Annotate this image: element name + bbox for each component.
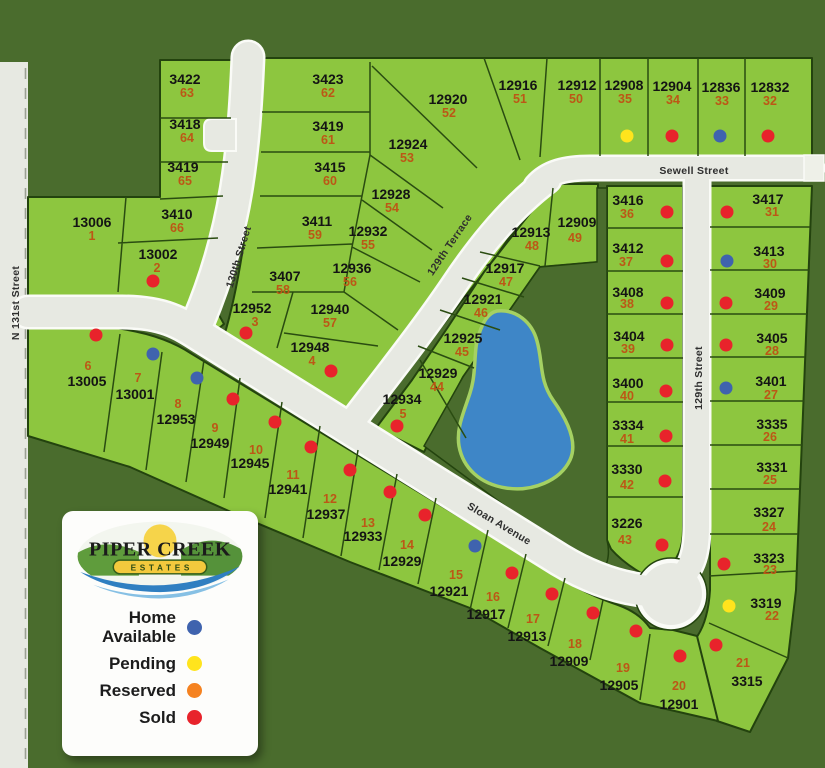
lot-address: 12929: [383, 553, 422, 569]
lot-number: 34: [666, 93, 680, 107]
lot-address: 12921: [464, 291, 503, 307]
status-dot-sold: [240, 327, 253, 340]
lot-number: 33: [715, 94, 729, 108]
status-dot-sold: [90, 329, 103, 342]
status-dot-sold: [656, 539, 669, 552]
status-dot-sold: [720, 339, 733, 352]
lot-address: 12934: [383, 391, 422, 407]
lot-address: 12909: [550, 653, 589, 669]
lot-number: 20: [672, 679, 686, 693]
status-dot-sold: [661, 297, 674, 310]
status-dot-sold: [661, 339, 674, 352]
lot-address: 12908: [605, 77, 644, 93]
lot-address: 12925: [444, 330, 483, 346]
status-dot-sold: [718, 558, 731, 571]
lot-number: 31: [765, 205, 779, 219]
lot-number: 62: [321, 86, 335, 100]
lot-address: 12901: [660, 696, 699, 712]
status-dot-sold: [630, 625, 643, 638]
lot-number: 22: [765, 609, 779, 623]
lot-address: 3419: [167, 159, 198, 175]
lot-number: 35: [618, 92, 632, 106]
lot-address: 12920: [429, 91, 468, 107]
lot-address: 12952: [233, 300, 272, 316]
lot-address: 13005: [68, 373, 107, 389]
lot-number: 9: [212, 421, 219, 435]
lot-address: 12916: [499, 77, 538, 93]
lot-number: 66: [170, 221, 184, 235]
reserved-dot-icon: [187, 683, 202, 698]
lot-number: 16: [486, 590, 500, 604]
lot-address: 12949: [191, 435, 230, 451]
lot-number: 52: [442, 106, 456, 120]
lot-number: 32: [763, 94, 777, 108]
status-dot-sold: [587, 607, 600, 620]
lot-address: 12937: [307, 506, 346, 522]
lot-number: 60: [323, 174, 337, 188]
lot-address: 12933: [344, 528, 383, 544]
lot-number: 27: [764, 388, 778, 402]
lot-number: 7: [135, 371, 142, 385]
lot-number: 1: [89, 229, 96, 243]
status-dot-home-available: [721, 255, 734, 268]
lot-address: 12928: [372, 186, 411, 202]
lot-number: 21: [736, 656, 750, 670]
lot-number: 56: [343, 275, 357, 289]
lot-address: 12836: [702, 79, 741, 95]
lot-number: 63: [180, 86, 194, 100]
lot-address: 3419: [312, 118, 343, 134]
lot-number: 10: [249, 443, 263, 457]
home-available-dot-icon: [187, 620, 202, 635]
legend-items: Home Available Pending Reserved Sold: [72, 608, 248, 727]
status-dot-pending: [621, 130, 634, 143]
lot-address: 12912: [558, 77, 597, 93]
lot-number: 6: [85, 359, 92, 373]
status-dot-sold: [384, 486, 397, 499]
lot-number: 19: [616, 661, 630, 675]
brand-banner-text: ESTATES: [131, 564, 193, 573]
lot-address: 12905: [600, 677, 639, 693]
lot-number: 3: [252, 315, 259, 329]
lot-number: 51: [513, 92, 527, 106]
lot-number: 42: [620, 478, 634, 492]
lot-address: 12924: [389, 136, 428, 152]
lot-address: 12940: [311, 301, 350, 317]
street-label-n-131st-street: N 131st Street: [10, 266, 22, 340]
lot-number: 58: [276, 283, 290, 297]
lot-number: 65: [178, 174, 192, 188]
status-dot-home-available: [191, 372, 204, 385]
status-dot-home-available: [714, 130, 727, 143]
lot-number: 29: [764, 299, 778, 313]
lot-number: 4: [309, 354, 316, 368]
legend-item-home-available: Home Available: [72, 608, 248, 646]
lot-number: 13: [361, 516, 375, 530]
status-dot-sold: [762, 130, 775, 143]
lot-address: 3423: [312, 71, 343, 87]
lot-number: 49: [568, 231, 582, 245]
lot-address: 12909: [558, 214, 597, 230]
lot-address: 12917: [486, 260, 525, 276]
lot-address: 13006: [73, 214, 112, 230]
status-dot-sold: [660, 430, 673, 443]
lot-number: 36: [620, 207, 634, 221]
status-dot-sold: [659, 475, 672, 488]
status-dot-home-available: [469, 540, 482, 553]
lot-number: 55: [361, 238, 375, 252]
lot-address: 3226: [611, 515, 642, 531]
status-dot-home-available: [720, 382, 733, 395]
lot-address: 12917: [467, 606, 506, 622]
lot-number: 53: [400, 151, 414, 165]
road-stub-130th: [204, 119, 236, 151]
lot-address: 3418: [169, 116, 200, 132]
lot-number: 43: [618, 533, 632, 547]
legend-card: PIPER CREEK ESTATES Home Available Pendi…: [62, 511, 258, 756]
lot-number: 38: [620, 297, 634, 311]
lot-number: 24: [762, 520, 776, 534]
lot-address: 3330: [611, 461, 642, 477]
legend-label: Sold: [139, 708, 176, 727]
legend-item-reserved: Reserved: [72, 681, 248, 700]
lot-address: 3416: [612, 192, 643, 208]
lot-address: 13002: [139, 246, 178, 262]
status-dot-sold: [305, 441, 318, 454]
status-dot-sold: [147, 275, 160, 288]
status-dot-sold: [227, 393, 240, 406]
lot-address: 3415: [314, 159, 345, 175]
lot-number: 18: [568, 637, 582, 651]
lot-number: 23: [763, 563, 777, 577]
sold-dot-icon: [187, 710, 202, 725]
legend-label: Home Available: [76, 608, 176, 646]
lot-number: 30: [763, 257, 777, 271]
status-dot-sold: [661, 206, 674, 219]
lot-address: 3407: [269, 268, 300, 284]
lot-address: 3412: [612, 240, 643, 256]
lot-number: 15: [449, 568, 463, 582]
status-dot-sold: [269, 416, 282, 429]
lot-address: 3334: [612, 417, 643, 433]
status-dot-sold: [506, 567, 519, 580]
legend-item-sold: Sold: [72, 708, 248, 727]
status-dot-sold: [721, 206, 734, 219]
road-n-131st-street: [0, 62, 28, 768]
lot-number: 41: [620, 432, 634, 446]
status-dot-sold: [391, 420, 404, 433]
street-label-129th-street: 129th Street: [693, 346, 705, 410]
cul-de-sac: [640, 563, 702, 625]
lot-number: 5: [400, 407, 407, 421]
legend-item-pending: Pending: [72, 654, 248, 673]
lot-address: 12913: [512, 224, 551, 240]
lot-address: 12921: [430, 583, 469, 599]
legend-label: Reserved: [99, 681, 176, 700]
lot-address: 12948: [291, 339, 330, 355]
status-dot-sold: [325, 365, 338, 378]
street-label-sewell-street: Sewell Street: [659, 165, 728, 177]
lot-number: 14: [400, 538, 414, 552]
status-dot-sold: [674, 650, 687, 663]
lot-number: 28: [765, 344, 779, 358]
pending-dot-icon: [187, 656, 202, 671]
status-dot-pending: [723, 600, 736, 613]
lot-address: 3422: [169, 71, 200, 87]
lot-number: 11: [286, 468, 299, 482]
road-stub-sewell: [804, 155, 824, 181]
lot-address: 3327: [753, 504, 784, 520]
status-dot-sold: [546, 588, 559, 601]
lot-number: 39: [621, 342, 635, 356]
lot-address: 12913: [508, 628, 547, 644]
lot-number: 8: [175, 397, 182, 411]
legend-label: Pending: [109, 654, 176, 673]
lot-address: 12945: [231, 455, 270, 471]
status-dot-sold: [720, 297, 733, 310]
status-dot-sold: [419, 509, 432, 522]
status-dot-sold: [660, 385, 673, 398]
lot-address: 12904: [653, 78, 692, 94]
lot-address: 3411: [302, 213, 333, 229]
lot-number: 25: [763, 473, 777, 487]
lot-number: 46: [474, 306, 488, 320]
lot-number: 61: [321, 133, 335, 147]
lot-number: 40: [620, 389, 634, 403]
lot-number: 12: [323, 492, 337, 506]
lot-address: 3410: [161, 206, 192, 222]
lot-address: 3401: [755, 373, 786, 389]
piper-creek-logo: PIPER CREEK ESTATES: [73, 517, 247, 605]
status-dot-sold: [661, 255, 674, 268]
lot-number: 64: [180, 131, 194, 145]
lot-number: 54: [385, 201, 399, 215]
status-dot-sold: [344, 464, 357, 477]
lot-number: 50: [569, 92, 583, 106]
lot-address: 12941: [269, 481, 308, 497]
lot-number: 59: [308, 228, 322, 242]
lot-address: 12929: [419, 365, 458, 381]
lot-number: 26: [763, 430, 777, 444]
lot-number: 37: [619, 255, 633, 269]
lot-address: 12832: [751, 79, 790, 95]
lot-address: 12936: [333, 260, 372, 276]
plat-map-screenshot: N 131st Street130th Street129th TerraceS…: [0, 0, 825, 768]
lot-address: 3315: [731, 673, 762, 689]
brand-name: PIPER CREEK: [89, 539, 231, 561]
lot-number: 48: [525, 239, 539, 253]
status-dot-sold: [666, 130, 679, 143]
status-dot-home-available: [147, 348, 160, 361]
lot-address: 12953: [157, 411, 196, 427]
lot-address: 13001: [116, 386, 155, 402]
lot-number: 47: [499, 275, 513, 289]
lot-number: 57: [323, 316, 337, 330]
status-dot-sold: [710, 639, 723, 652]
lot-number: 44: [430, 380, 444, 394]
lot-number: 2: [154, 261, 161, 275]
lot-address: 12932: [349, 223, 388, 239]
lot-number: 45: [455, 345, 469, 359]
lot-number: 17: [526, 612, 540, 626]
